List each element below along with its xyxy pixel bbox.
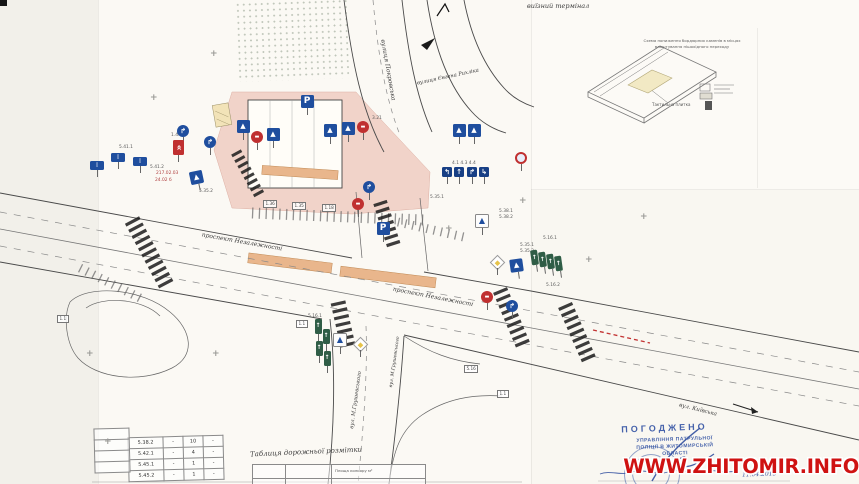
sign-info-icon: ▯ (90, 161, 104, 170)
scanned-traffic-scheme: виїзний термінал Схема пониження бордюрн… (0, 0, 859, 484)
sign-parking-icon: P (301, 95, 314, 108)
sign-chevron-icon: « (173, 140, 184, 155)
sign-ped-icon: ▲ (468, 124, 481, 137)
sign-lane-bar-icon: ↑ (545, 253, 554, 269)
sign-no-entry-icon: ▬ (352, 198, 364, 210)
kiosk-hatched (212, 103, 232, 127)
sign-ped-icon: ▲ (324, 124, 337, 137)
sign-prohibit-icon (515, 152, 527, 164)
marking-code-box: 1.18 (322, 204, 336, 212)
sign-round-blue-icon: ↱ (177, 125, 189, 137)
survey-cross-mark: + (445, 225, 453, 234)
survey-cross-mark: + (210, 50, 218, 59)
sign-parking-icon: P (377, 222, 390, 235)
sign-lane-sq-icon: ↳ (479, 167, 489, 177)
sign-count-row: 5.45.2-1- (129, 468, 224, 481)
marking-code-box: 1.1 (497, 390, 509, 398)
survey-cross-mark: + (86, 350, 94, 359)
sign-code-annotation: 217.02.03 (156, 172, 178, 177)
marking-code-box: 1.36 (263, 200, 277, 208)
marking-table: Площа кольору м² (252, 464, 426, 484)
survey-cross-mark: + (104, 438, 112, 447)
sign-lane-bar-icon: ↑ (529, 249, 538, 265)
sign-lane-bar-icon: ↑ (537, 251, 546, 267)
sign-info-icon: ▯ (111, 153, 125, 162)
sign-no-entry-icon: ▬ (357, 121, 369, 133)
curb-mini-detail (700, 84, 734, 110)
sign-ped-icon: ▲ (509, 258, 524, 273)
inset-caption-line1: Схема пониження бордюрних каменів в місц… (612, 38, 772, 43)
sign-round-blue-icon: ↱ (506, 300, 518, 312)
sign-diamond-icon (492, 257, 503, 268)
sign-code-annotation: 5.38.2 (499, 216, 513, 221)
sign-ped-icon: ▲ (188, 169, 203, 184)
sign-ped-icon: ▲ (342, 122, 355, 135)
sign-tri-frame-icon: ▲ (475, 214, 489, 228)
survey-cross-mark: + (150, 94, 158, 103)
sign-lane-bar-icon: ↑ (315, 319, 322, 334)
sign-ped-icon: ▲ (267, 128, 280, 141)
sign-code-annotation: 5.35.1 (430, 196, 444, 201)
tactile-strip-label: Тактильна плитка (652, 102, 690, 107)
sign-table-fragment (93, 428, 130, 474)
sign-ped-icon: ▲ (237, 120, 250, 133)
inset-caption-line2: влаштування пішохідного переходу (612, 44, 772, 49)
sign-lane-sq-icon: ↰ (442, 167, 452, 177)
survey-cross-mark: + (585, 256, 593, 265)
sign-lane-sq-icon: ↱ (467, 167, 477, 177)
sign-info-icon: ▯ (133, 157, 147, 166)
sign-no-entry-icon: ▬ (481, 291, 493, 303)
sign-code-annotation: 5.16.2 (546, 284, 560, 289)
sign-code-annotation: 5.35.2 (199, 190, 213, 195)
sign-code-annotation: 5.41.1 (119, 146, 133, 151)
sign-code-annotation: 24.02 б (155, 179, 172, 184)
sign-ped-icon: ▲ (453, 124, 466, 137)
site-plan-drawing (0, 0, 859, 484)
survey-cross-mark: + (519, 197, 527, 206)
sign-round-blue-icon: ↱ (204, 136, 216, 148)
sign-lane-sq-icon: ↑ (454, 167, 464, 177)
sign-lane-bar-icon: ↑ (553, 255, 562, 271)
sign-lane-bar-icon: ↑ (324, 351, 331, 366)
sign-no-entry-icon: ▬ (251, 131, 263, 143)
marking-code-box: 5.16 (464, 365, 478, 373)
watermark: WWW.ZHITOMIR.INFO (623, 455, 859, 478)
stamp-approved-text: ПОГОДЖЕНО (621, 421, 708, 434)
sign-code-annotation: 3.21 (372, 117, 382, 122)
sign-round-blue-icon: ↱ (363, 181, 375, 193)
survey-cross-mark: + (212, 350, 220, 359)
marking-code-box: 1.1 (296, 320, 308, 328)
sign-code-annotation: 5.16.1 (543, 237, 557, 242)
marking-table-col-header: Площа кольору м² (335, 468, 372, 473)
sign-diamond-icon (355, 339, 366, 350)
marking-code-box: 1.1 (57, 315, 69, 323)
marking-code-box: 1.35 (292, 202, 306, 210)
sign-tri-frame-icon: ▲ (333, 333, 347, 347)
top-note: виїзний термінал (527, 2, 589, 10)
sign-count-table: 5.38.2-10-5.42.1-4-5.45.1-1-5.45.2-1- (127, 435, 224, 482)
sign-lane-bar-icon: ↑ (316, 341, 323, 356)
survey-cross-mark: + (640, 213, 648, 222)
sign-lane-bar-icon: ↑ (323, 329, 330, 344)
